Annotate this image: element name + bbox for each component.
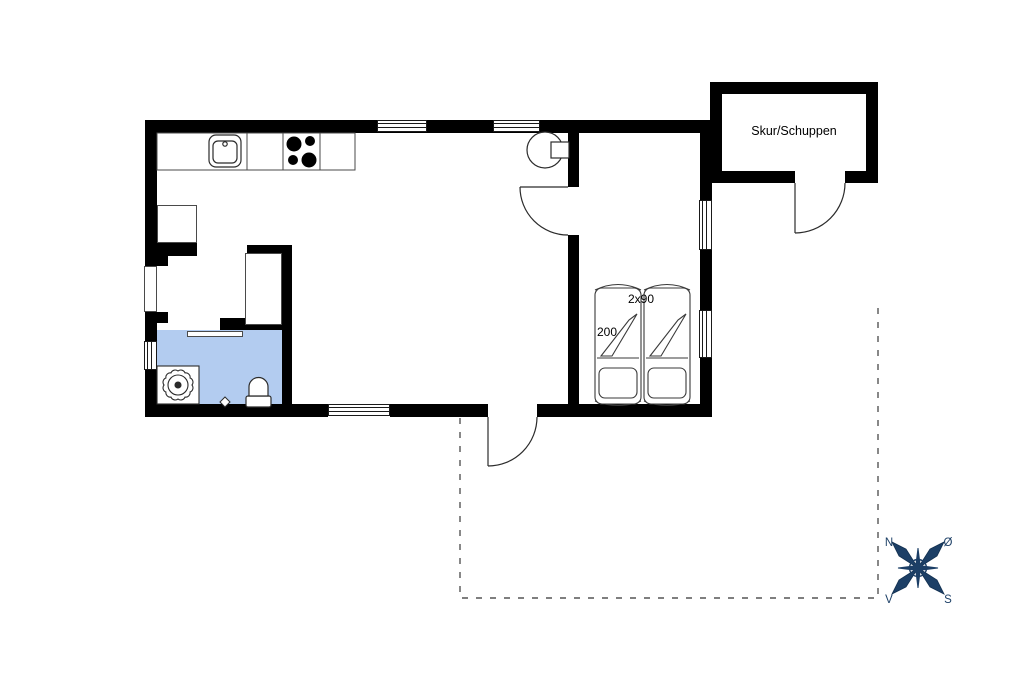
fixtures-layer: Skur/Schuppen 2x90 200 N Ø V S — [0, 0, 1024, 682]
compass-label-east: Ø — [944, 537, 953, 549]
compass-label-south: S — [944, 594, 952, 606]
toilet-icon — [246, 378, 271, 408]
pillow — [599, 368, 637, 398]
floor-drain-icon — [220, 397, 230, 407]
floor-plan: Skur/Schuppen 2x90 200 N Ø V S — [0, 0, 1024, 682]
compass-label-west: V — [885, 594, 893, 606]
compass-rose-icon — [892, 542, 944, 594]
door-shed-swing — [795, 183, 845, 233]
pillow — [648, 368, 686, 398]
door-entrance-swing — [488, 417, 537, 466]
wood-stove-icon — [527, 132, 569, 168]
bed-size-label: 2x90 — [628, 292, 654, 306]
kitchen-sink-icon — [209, 135, 241, 167]
shower-icon — [157, 366, 199, 404]
compass-label-north: N — [885, 537, 893, 549]
kitchen-counter — [157, 133, 355, 170]
bed-divider-line — [641, 306, 644, 362]
bed-length-label: 200 — [597, 325, 617, 339]
door-bedroom-swing — [520, 187, 568, 235]
shed-label: Skur/Schuppen — [751, 124, 837, 138]
